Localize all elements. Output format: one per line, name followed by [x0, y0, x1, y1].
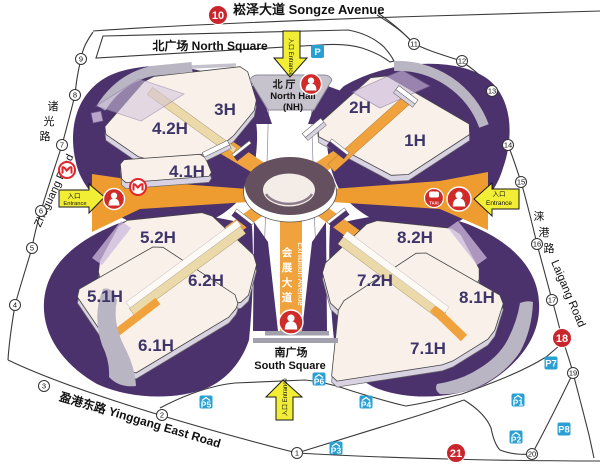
svg-text:13: 13	[488, 87, 496, 96]
svg-text:TAXI: TAXI	[429, 201, 438, 206]
svg-text:大: 大	[282, 276, 293, 289]
svg-text:展: 展	[282, 262, 293, 274]
svg-text:涞: 涞	[534, 210, 545, 223]
svg-text:路: 路	[544, 242, 555, 255]
svg-text:入口 Entrance: 入口 Entrance	[282, 378, 289, 416]
svg-text:4.2H: 4.2H	[152, 119, 188, 138]
svg-text:港: 港	[539, 226, 550, 239]
svg-text:2: 2	[160, 411, 164, 420]
svg-text:会: 会	[282, 246, 293, 259]
svg-text:8.2H: 8.2H	[397, 228, 433, 247]
svg-text:20: 20	[528, 450, 536, 459]
svg-text:5: 5	[30, 244, 34, 253]
svg-text:5.2H: 5.2H	[140, 228, 176, 247]
svg-text:17: 17	[548, 296, 556, 305]
svg-text:P4: P4	[361, 400, 372, 410]
svg-text:16: 16	[533, 240, 541, 249]
svg-text:5.1H: 5.1H	[87, 287, 123, 306]
svg-text:19: 19	[569, 369, 577, 378]
svg-text:入口: 入口	[493, 190, 506, 198]
svg-text:P5: P5	[201, 400, 212, 410]
svg-text:9: 9	[79, 55, 83, 64]
svg-text:4: 4	[13, 301, 17, 310]
svg-text:14: 14	[504, 141, 512, 150]
svg-text:P3: P3	[331, 446, 342, 456]
svg-text:11: 11	[410, 40, 418, 49]
svg-text:入口: 入口	[68, 192, 81, 200]
svg-text:4.1H: 4.1H	[169, 162, 205, 181]
svg-text:P7: P7	[545, 359, 557, 370]
svg-text:7: 7	[60, 141, 64, 150]
svg-text:18: 18	[556, 333, 568, 345]
svg-text:北广场 North Square: 北广场 North Square	[152, 38, 268, 53]
svg-text:入口 Entrance: 入口 Entrance	[287, 38, 294, 76]
svg-text:Exhibition Avenue: Exhibition Avenue	[296, 242, 305, 306]
svg-text:(NH): (NH)	[283, 102, 303, 113]
svg-text:崧泽大道 Songze Avenue: 崧泽大道 Songze Avenue	[233, 2, 384, 17]
svg-text:北 厅: 北 厅	[273, 78, 296, 91]
svg-text:P1: P1	[513, 398, 524, 408]
svg-text:P8: P8	[558, 425, 570, 436]
svg-text:8.1H: 8.1H	[459, 288, 495, 307]
svg-text:南广场: 南广场	[275, 345, 308, 359]
svg-text:3: 3	[42, 382, 46, 391]
svg-text:1: 1	[295, 449, 299, 458]
svg-text:Entrance: Entrance	[63, 201, 86, 207]
svg-text:2H: 2H	[349, 98, 371, 117]
svg-text:15: 15	[517, 178, 525, 187]
svg-text:6.2H: 6.2H	[188, 271, 224, 290]
svg-text:1H: 1H	[404, 131, 426, 150]
svg-text:7.2H: 7.2H	[357, 271, 393, 290]
svg-text:6.1H: 6.1H	[138, 336, 174, 355]
svg-text:诸: 诸	[48, 100, 59, 113]
svg-text:South Square: South Square	[254, 360, 326, 372]
svg-text:8: 8	[73, 91, 77, 100]
svg-text:3H: 3H	[214, 100, 236, 119]
svg-text:道: 道	[282, 291, 293, 304]
svg-text:6: 6	[39, 207, 43, 216]
svg-text:光: 光	[44, 114, 55, 128]
svg-text:P6: P6	[314, 377, 325, 387]
svg-text:7.1H: 7.1H	[410, 339, 446, 358]
svg-text:12: 12	[458, 57, 466, 66]
svg-text:21: 21	[450, 448, 462, 460]
svg-text:P: P	[314, 47, 321, 58]
svg-text:Entrance: Entrance	[486, 200, 512, 207]
svg-text:10: 10	[212, 10, 224, 22]
svg-text:路: 路	[40, 130, 51, 143]
svg-text:P2: P2	[511, 435, 522, 445]
